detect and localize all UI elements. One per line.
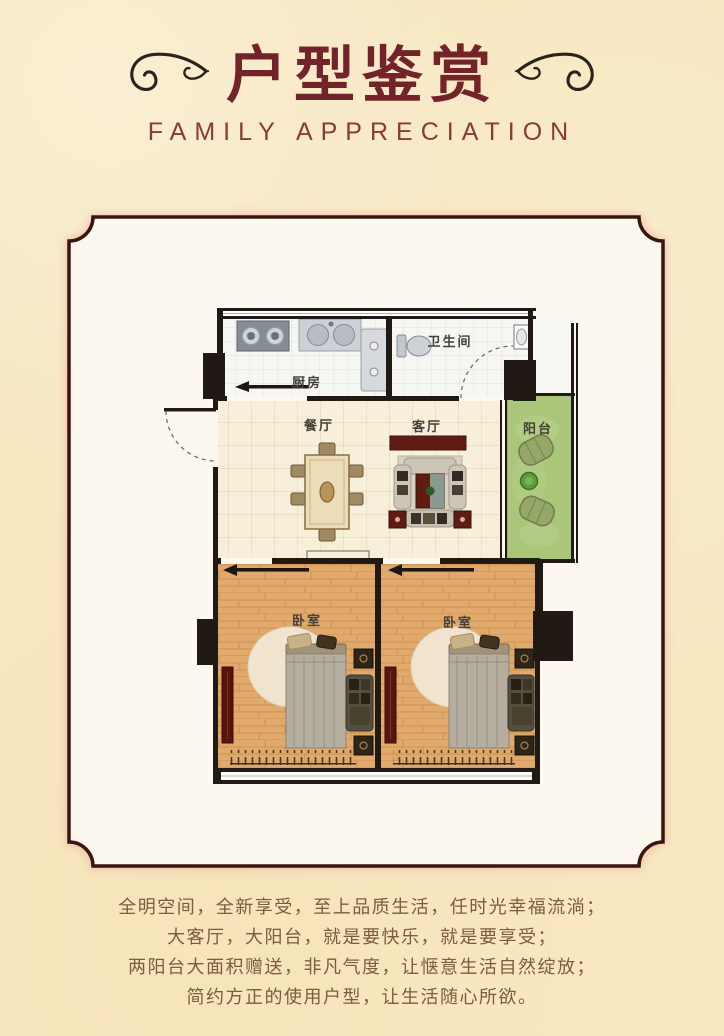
bedroom-left-label: 卧室 [292, 613, 322, 629]
title-row: 户型鉴赏 [0, 44, 724, 108]
description-line: 两阳台大面积赠送，非凡气度，让惬意生活自然绽放； [0, 953, 724, 983]
poster-page: { "header": { "title": "户型鉴赏", "subtitle… [0, 0, 724, 1036]
living-sill [307, 551, 369, 559]
balcony-floor [505, 396, 571, 559]
floorplan-frame: 厨房 卫生间 餐厅 客厅 阳台 卧室 卧室 [67, 215, 665, 868]
tv-console [390, 436, 466, 450]
sofa-set [389, 436, 471, 528]
flourish-right-icon [512, 47, 600, 105]
page-title: 户型鉴赏 [226, 44, 498, 108]
balcony-label: 阳台 [523, 421, 553, 437]
description-line: 简约方正的使用户型，让生活随心所欲。 [0, 983, 724, 1013]
dining-label: 餐厅 [303, 418, 334, 434]
entry-door-arc [166, 411, 216, 461]
header: 户型鉴赏 FAMILY APPRECIATION [0, 44, 724, 147]
entry-door-leaf [164, 408, 216, 412]
page-subtitle: FAMILY APPRECIATION [0, 118, 724, 147]
description-line: 大客厅，大阳台，就是要快乐，就是要享受； [0, 923, 724, 953]
bedroom-right-label: 卧室 [443, 615, 473, 631]
bathroom-label: 卫生间 [427, 334, 472, 350]
utility-floor [533, 318, 573, 395]
description-block: 全明空间，全新享受，至上品质生活，任时光幸福流淌； 大客厅，大阳台，就是要快乐，… [0, 893, 724, 1013]
flourish-left-icon [124, 47, 212, 105]
description-line: 全明空间，全新享受，至上品质生活，任时光幸福流淌； [0, 893, 724, 923]
kitchen-label: 厨房 [292, 375, 322, 391]
living-label: 客厅 [412, 419, 442, 435]
floorplan: 厨房 卫生间 餐厅 客厅 阳台 卧室 卧室 [67, 215, 665, 868]
